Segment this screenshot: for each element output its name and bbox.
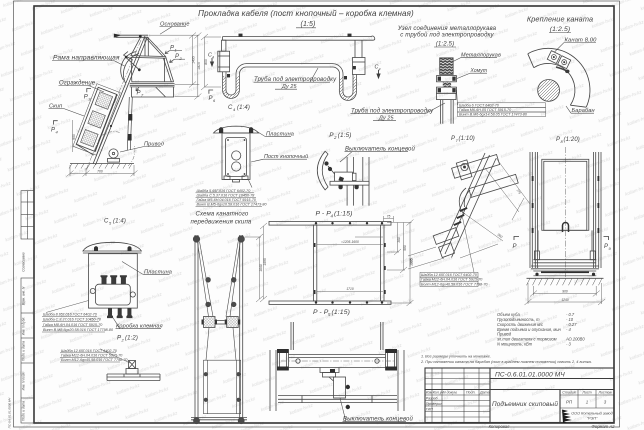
svg-text:(1:5): (1:5) [301, 21, 316, 28]
svg-text:"РЭП": "РЭП" [587, 417, 598, 421]
svg-text:1495: 1495 [192, 56, 196, 64]
svg-text:Прокладка кабеля (пост кнопочн: Прокладка кабеля (пост кнопочный – короб… [198, 9, 414, 18]
svg-text:Инв. N подл.: Инв. N подл. [21, 372, 25, 391]
svg-text:1. Все размеры уточнить на мон: 1. Все размеры уточнить на монтаже. [421, 354, 491, 358]
svg-text:(1:15): (1:15) [332, 309, 350, 316]
svg-text:≈1205-1600: ≈1205-1600 [341, 240, 359, 244]
svg-text:(1:4): (1:4) [237, 105, 250, 111]
svg-text:Лист: Лист [581, 391, 591, 395]
svg-text:Подп. и дата: Подп. и дата [21, 341, 25, 361]
svg-text:1495: 1495 [263, 258, 267, 266]
svg-text:P: P [137, 91, 141, 97]
svg-text:Болт М12-6gх45.58.016 ГОСТ 779: Болт М12-6gх45.58.016 ГОСТ 7798-70 [61, 358, 128, 362]
svg-text:Гайка М6-6Н.05 ГОСТ 5915-70: Гайка М6-6Н.05 ГОСТ 5915-70 [459, 108, 512, 112]
svg-text:(1:2.5): (1:2.5) [436, 41, 454, 48]
svg-text:Винт В.М5-6gх10.58.016 ГОСТ 17: Винт В.М5-6gх10.58.016 ГОСТ 17473-80 [197, 203, 268, 207]
svg-text:N мощность, кВт: N мощность, кВт [497, 342, 533, 347]
svg-text:ПС-0.6.01.01.0000 МЧ: ПС-0.6.01.01.0000 МЧ [8, 397, 12, 429]
svg-text:Проверил: Проверил [426, 402, 442, 406]
svg-text:Винт В.М6-6gх14.58.05 ГОСТ 174: Винт В.М6-6gх14.58.05 ГОСТ 17473-80 [459, 113, 528, 117]
svg-text:с трубой под электропроводку: с трубой под электропроводку [400, 32, 494, 39]
svg-text:1: 1 [175, 48, 177, 53]
svg-text:Винт В.М8-6gх20.58.016 ГОСТ 17: Винт В.М8-6gх20.58.016 ГОСТ 17798-80 [43, 328, 114, 332]
svg-text:Подп.: Подп. [466, 391, 476, 395]
svg-text:(1:10): (1:10) [459, 136, 475, 142]
svg-text:P: P [117, 335, 121, 341]
svg-text:Болт М12-6gх40.58.016 ГОСТ 779: Болт М12-6gх40.58.016 ГОСТ 7798-70 [421, 282, 488, 286]
svg-text:2065: 2065 [409, 258, 413, 267]
svg-text:950: 950 [72, 134, 76, 140]
svg-text:P: P [556, 137, 560, 143]
svg-text:Шайба 12.65Г.016 ГОСТ 6402-70: Шайба 12.65Г.016 ГОСТ 6402-70 [421, 273, 478, 277]
svg-text:1710: 1710 [346, 287, 354, 291]
svg-text:Гайка М5-6Н.04.016 ГОСТ 5915-7: Гайка М5-6Н.04.016 ГОСТ 5915-70 [197, 198, 257, 202]
svg-text:Шайба С.5.37.016 ГОСТ 10450-78: Шайба С.5.37.016 ГОСТ 10450-78 [197, 193, 256, 197]
svg-text:4: 4 [212, 56, 214, 60]
svg-text:Шайба 8.65Г.016 ГОСТ 6402-70: Шайба 8.65Г.016 ГОСТ 6402-70 [43, 312, 98, 316]
svg-text:800: 800 [204, 59, 208, 65]
svg-text:ПС-0.6.01.01.0000 МЧ: ПС-0.6.01.01.0000 МЧ [495, 372, 565, 379]
svg-text:Взам. инв. N: Взам. инв. N [21, 286, 25, 305]
svg-text:Схема канатного: Схема канатного [196, 211, 249, 218]
svg-text:P: P [51, 128, 55, 134]
svg-text:Гайка М12-6Н.04.016 ГОСТ 5915-: Гайка М12-6Н.04.016 ГОСТ 5915-70 [421, 278, 483, 282]
svg-text:P: P [513, 244, 517, 250]
svg-text:P: P [451, 136, 455, 142]
svg-text:ГИП: ГИП [426, 408, 434, 412]
svg-text:700: 700 [97, 170, 103, 174]
svg-text:900: 900 [562, 289, 568, 293]
svg-text:(1:20): (1:20) [564, 137, 580, 143]
svg-text:4: 4 [379, 68, 381, 72]
svg-text:1240: 1240 [561, 298, 569, 302]
svg-text:Подп. и дата: Подп. и дата [21, 401, 25, 421]
svg-text:P: P [604, 244, 608, 250]
svg-text:Шайба 12.65Г.016 ГОСТ 6402-70: Шайба 12.65Г.016 ГОСТ 6402-70 [61, 349, 118, 353]
svg-text:Листов: Листов [597, 391, 611, 395]
svg-text:2: 2 [333, 135, 337, 140]
svg-text:P: P [84, 95, 88, 101]
svg-text:Гайка М8-6Н.04.016 ГОСТ 5915-7: Гайка М8-6Н.04.016 ГОСТ 5915-70 [43, 323, 103, 327]
svg-text:Копировал: Копировал [489, 424, 510, 429]
svg-text:(1:2.5): (1:2.5) [550, 26, 570, 33]
svg-text:Стадия: Стадия [562, 391, 576, 395]
svg-text:Шайба 6 ГОСТ 6402-70: Шайба 6 ГОСТ 6402-70 [459, 104, 500, 108]
svg-text:Формат А2: Формат А2 [592, 424, 616, 429]
svg-text:РП: РП [566, 400, 573, 405]
svg-text:Инв. N дубл.: Инв. N дубл. [21, 317, 25, 336]
svg-text:360: 360 [397, 237, 401, 243]
svg-text:Крепление каната: Крепление каната [527, 15, 593, 24]
svg-text:ООО Котельный завод: ООО Котельный завод [571, 412, 613, 416]
svg-text:1815: 1815 [197, 62, 201, 70]
svg-text:- 4: - 4 [566, 327, 572, 332]
svg-text:2. При натяжении каната на бар: 2. При натяжении каната на барабан (скип… [420, 360, 592, 364]
svg-text:- 3: - 3 [566, 342, 572, 347]
svg-text:Согласовано: Согласовано [21, 252, 25, 272]
svg-text:580: 580 [403, 245, 407, 251]
svg-text:P - P: P - P [316, 210, 332, 217]
svg-text:Подъемник скиповый: Подъемник скиповый [492, 400, 558, 408]
svg-text:(1:4): (1:4) [113, 218, 126, 224]
svg-text:передвижения скипа: передвижения скипа [191, 219, 252, 226]
svg-text:Шайба С.8.37.016 ГОСТ 10450-78: Шайба С.8.37.016 ГОСТ 10450-78 [43, 318, 102, 322]
svg-text:N докум.: N докум. [443, 391, 458, 395]
svg-text:P - P: P - P [313, 309, 329, 316]
svg-text:Разраб.: Разраб. [426, 397, 439, 401]
svg-text:P: P [209, 96, 213, 102]
svg-text:(1:15): (1:15) [334, 210, 352, 217]
svg-text:(1:5): (1:5) [338, 132, 352, 139]
svg-text:(1:2): (1:2) [125, 335, 138, 341]
svg-text:75: 75 [387, 214, 391, 218]
svg-text:Дата: Дата [479, 391, 489, 395]
svg-text:Кол.уч: Кол.уч [433, 391, 444, 395]
svg-text:Шайба 5.65Г.016 ГОСТ 6402-70: Шайба 5.65Г.016 ГОСТ 6402-70 [197, 189, 252, 193]
